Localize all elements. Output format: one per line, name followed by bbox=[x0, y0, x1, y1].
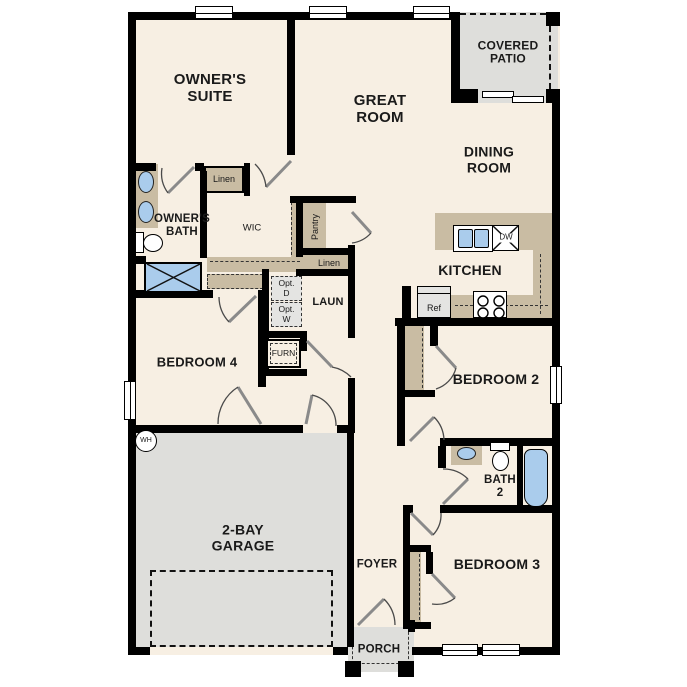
door-owners-suite bbox=[255, 161, 291, 187]
stove-burners bbox=[478, 296, 504, 318]
room-label-dining-room: DINING ROOM bbox=[464, 144, 514, 175]
room-label-foyer: FOYER bbox=[357, 559, 398, 572]
door-bedroom3 bbox=[411, 513, 441, 535]
door-front bbox=[358, 599, 395, 625]
door-hall-top bbox=[352, 212, 371, 243]
dishwasher-label: DW bbox=[498, 234, 513, 243]
room-label-great-room: GREAT ROOM bbox=[354, 93, 406, 127]
door-swing-overlay bbox=[0, 0, 687, 687]
room-label-owners-suite: OWNER'S SUITE bbox=[174, 72, 246, 106]
closet-label-linen-lower: Linen bbox=[318, 258, 340, 268]
room-label-bedroom2: BEDROOM 2 bbox=[453, 372, 540, 388]
door-owners-bath bbox=[162, 167, 194, 193]
closet-label-pantry: Pantry bbox=[310, 214, 320, 240]
room-label-wic: WIC bbox=[243, 224, 261, 235]
room-label-garage: 2-BAY GARAGE bbox=[212, 522, 275, 553]
room-label-laundry: LAUN bbox=[312, 296, 343, 308]
door-laundry bbox=[307, 341, 351, 377]
door-bath2 bbox=[443, 469, 468, 504]
room-label-porch: PORCH bbox=[358, 644, 401, 657]
door-bedroom2 bbox=[410, 417, 444, 441]
floor-plan-canvas: Opt. D Opt. W FURN WH Ref bbox=[0, 0, 687, 687]
room-label-kitchen: KITCHEN bbox=[438, 263, 502, 279]
room-label-bedroom3: BEDROOM 3 bbox=[454, 557, 541, 573]
door-hall-mid bbox=[219, 296, 256, 322]
door-bedroom4 bbox=[218, 387, 261, 424]
room-label-covered-patio: COVERED PATIO bbox=[478, 40, 539, 67]
room-label-bath2: BATH 2 bbox=[484, 474, 516, 500]
room-label-bedroom4: BEDROOM 4 bbox=[157, 356, 238, 371]
closet-label-linen-upper: Linen bbox=[213, 174, 235, 184]
room-label-owners-bath: OWNER'S BATH bbox=[154, 213, 210, 239]
door-bedroom3-closet bbox=[432, 574, 455, 604]
door-garage bbox=[306, 395, 336, 426]
